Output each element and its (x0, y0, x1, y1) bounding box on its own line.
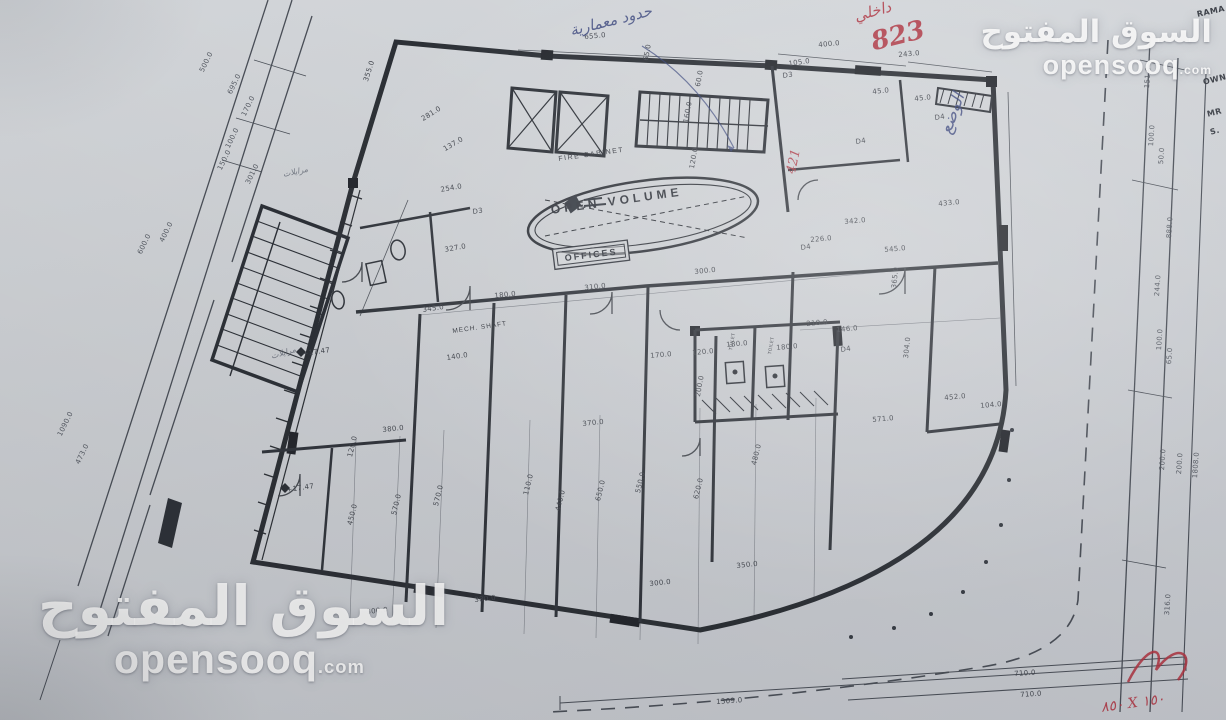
interior-walls (262, 66, 1000, 622)
plan-linework (0, 0, 1226, 720)
bottom-dimension-lines (560, 657, 1188, 710)
building-outline (253, 42, 1006, 630)
blueprint-photo: 655.0355.0400.0243.0105.045.045.065.060.… (0, 0, 1226, 720)
street-lines-left (40, 0, 312, 700)
street-left-wall-bar (158, 498, 182, 548)
annex-staircase (212, 206, 348, 392)
elevator-shafts (508, 88, 608, 156)
wall-columns (287, 50, 1011, 628)
bath-fixtures (330, 239, 407, 310)
red-scribble-mark (1128, 652, 1186, 682)
top-dimension-lines (360, 50, 1016, 386)
door-arcs (278, 180, 905, 496)
extension-lines (262, 262, 1000, 644)
main-staircase (636, 92, 768, 152)
